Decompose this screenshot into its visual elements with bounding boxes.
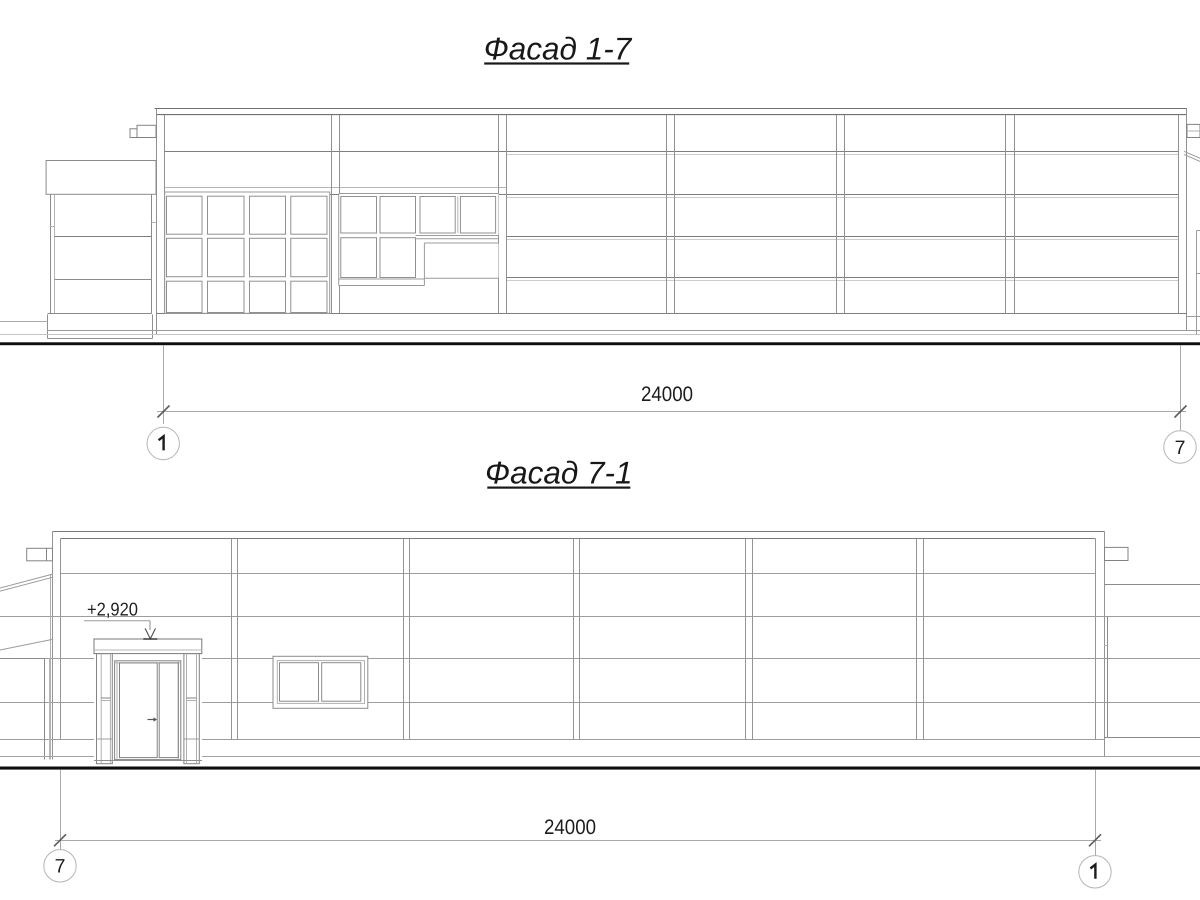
svg-text:24000: 24000 <box>641 383 693 406</box>
svg-text:+2,920: +2,920 <box>87 599 138 620</box>
svg-text:Фасад 7-1: Фасад 7-1 <box>485 455 633 491</box>
svg-text:7: 7 <box>55 856 66 878</box>
svg-text:7: 7 <box>1175 437 1186 459</box>
svg-text:Фасад 1-7: Фасад 1-7 <box>484 31 633 67</box>
svg-text:24000: 24000 <box>544 816 596 839</box>
